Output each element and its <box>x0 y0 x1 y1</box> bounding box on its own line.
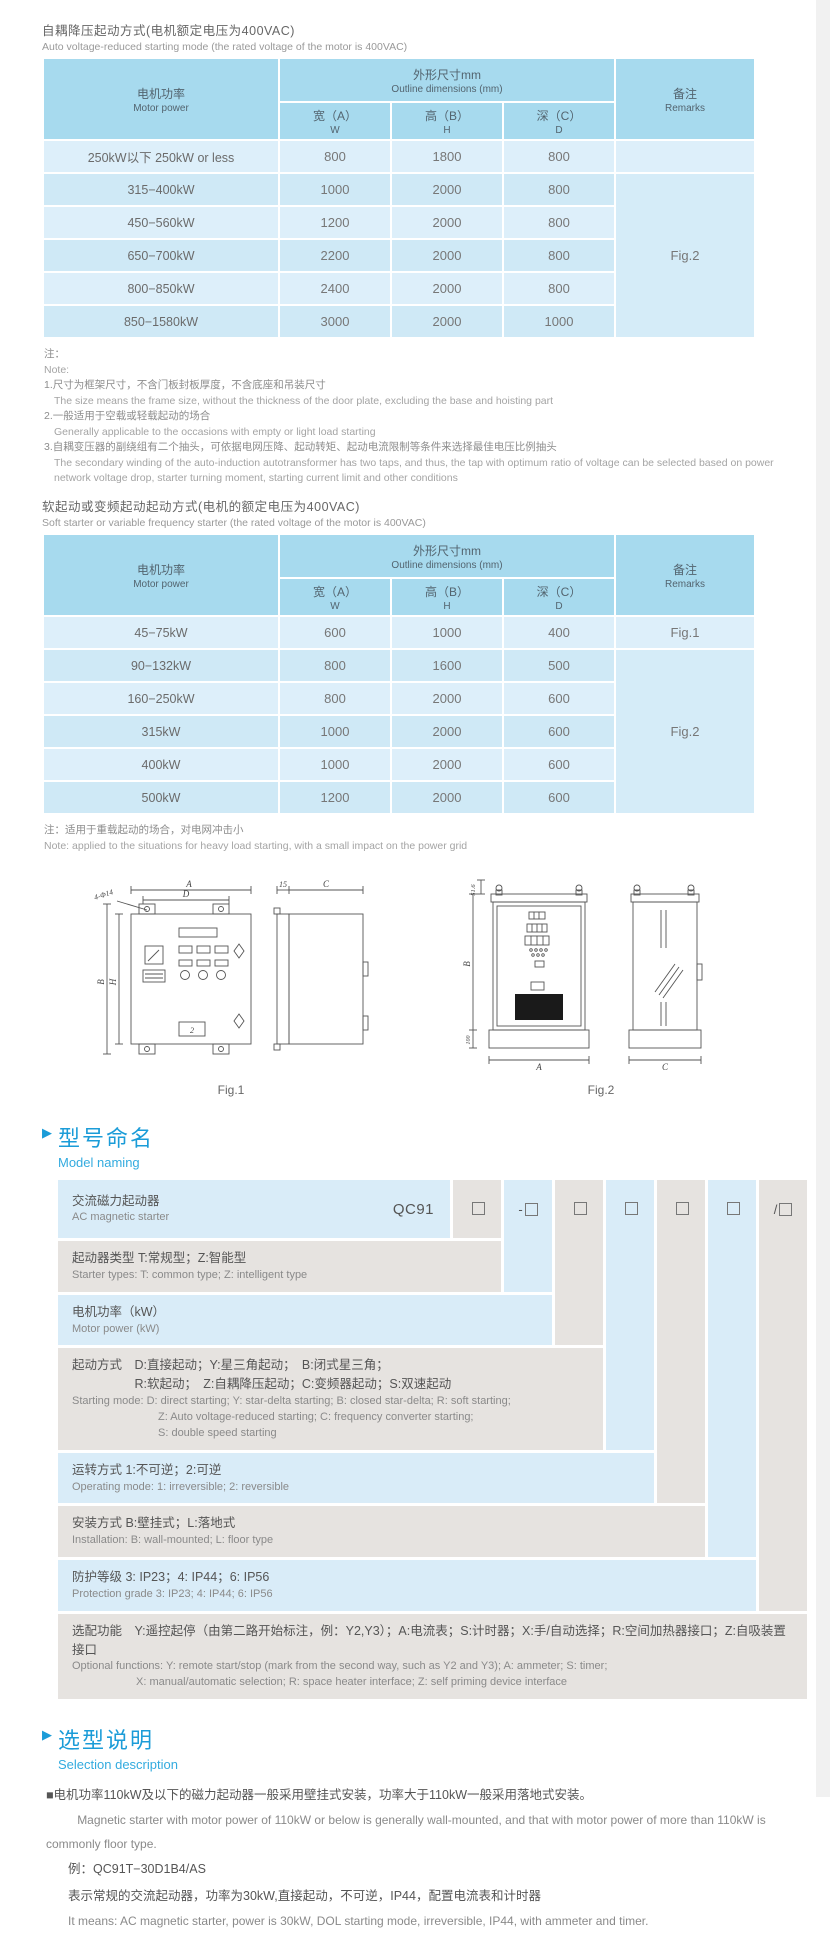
auto-reduced-title: 自耦降压起动方式(电机额定电压为400VAC) Auto voltage-red… <box>42 20 790 53</box>
table-row: 45−75kW 600 1000 400 Fig.1 <box>44 617 754 648</box>
fig1-dim-15: 15 <box>279 880 287 889</box>
selection-example-zh: 表示常规的交流起动器，功率为30kW,直接起动，不可逆，IP44，配置电流表和计… <box>68 1883 794 1909</box>
soft-starter-table: 电机功率 Motor power 外形尺寸mm Outline dimensio… <box>42 533 756 815</box>
col-header-outline: 外形尺寸mm Outline dimensions (mm) <box>280 59 614 101</box>
model-row-starter-type: 起动器类型 T:常规型；Z:智能型 Starter types: T: comm… <box>58 1241 501 1292</box>
note-block-1: 注： Note: 1.尺寸为框架尺寸，不含门板封板厚度，不含底座和吊装尺寸 Th… <box>44 347 790 486</box>
fig1-block: A D 4-Φ14 B H 15 C 2 Fig.1 <box>81 876 381 1097</box>
col-header-height: 高（B） H <box>392 579 502 615</box>
fig1-dim-a: A <box>185 879 192 889</box>
fig1-caption: Fig.1 <box>81 1083 381 1097</box>
fig2-drawing: 51.6 B 100 A C <box>451 876 751 1076</box>
model-naming-table: 交流磁力起动器 AC magnetic starter QC91 - / <box>58 1180 805 1699</box>
dimension-figures: A D 4-Φ14 B H 15 C 2 Fig.1 <box>42 876 790 1097</box>
auto-reduced-title-zh: 自耦降压起动方式(电机额定电压为400VAC) <box>42 20 790 39</box>
selection-example-en: It means: AC magnetic starter, power is … <box>68 1909 794 1933</box>
selection-title-en: Selection description <box>58 1757 178 1772</box>
auto-reduced-title-en: Auto voltage-reduced starting mode (the … <box>42 41 790 53</box>
model-code-box <box>525 1203 538 1216</box>
fig1-dim-h: H <box>108 978 118 986</box>
fig2-dim-a: A <box>535 1062 542 1072</box>
model-row-protection-grade: 防护等级 3: IP23；4: IP44；6: IP56 Protection … <box>58 1560 756 1611</box>
soft-starter-title: 软起动或变频起动起动方式(电机的额定电压为400VAC) Soft starte… <box>42 496 790 529</box>
model-row-product: 交流磁力起动器 AC magnetic starter QC91 <box>58 1180 450 1238</box>
triangle-marker-icon: ▶ <box>42 1727 52 1743</box>
fig2-dim-c: C <box>662 1062 669 1072</box>
model-naming-title-zh: 型号命名 <box>58 1121 154 1153</box>
col-header-depth: 深（C） D <box>504 579 614 615</box>
fig1-dim-d: D <box>182 889 190 899</box>
col-header-depth: 深（C） D <box>504 103 614 139</box>
col-header-remarks: 备注 Remarks <box>616 59 754 139</box>
code-column-7: / <box>759 1180 807 1611</box>
code-column-4 <box>606 1180 654 1450</box>
code-column-1 <box>453 1180 501 1238</box>
selection-section-header: ▶ 选型说明 Selection description <box>42 1723 790 1772</box>
table-row: 250kW以下 250kW or less 800 1800 800 <box>44 141 754 172</box>
model-code-box <box>727 1202 740 1215</box>
col-header-width: 宽（A） W <box>280 579 390 615</box>
merged-remark-fig2: Fig.2 <box>616 174 754 337</box>
soft-starter-title-en: Soft starter or variable frequency start… <box>42 517 790 529</box>
col-header-width: 宽（A） W <box>280 103 390 139</box>
col-header-height: 高（B） H <box>392 103 502 139</box>
col-header-remarks: 备注 Remarks <box>616 535 754 615</box>
fig1-panel-num: 2 <box>190 1026 194 1035</box>
col-header-motor-power: 电机功率 Motor power <box>44 59 278 139</box>
col-header-outline: 外形尺寸mm Outline dimensions (mm) <box>280 535 614 577</box>
selection-title-zh: 选型说明 <box>58 1723 178 1755</box>
table-row: 315−400kW 1000 2000 800 Fig.2 <box>44 174 754 205</box>
remark-fig1: Fig.1 <box>616 617 754 648</box>
model-code-box <box>574 1202 587 1215</box>
merged-remark-fig2: Fig.2 <box>616 650 754 813</box>
fig2-dim-100: 100 <box>466 1036 472 1045</box>
model-code-box <box>779 1203 792 1216</box>
catalog-page: 自耦降压起动方式(电机额定电压为400VAC) Auto voltage-red… <box>0 0 830 1933</box>
fig1-dim-b: B <box>96 979 106 985</box>
fig2-dim-516: 51.6 <box>470 884 477 896</box>
triangle-marker-icon: ▶ <box>42 1125 52 1141</box>
fig2-block: 51.6 B 100 A C Fig.2 <box>451 876 751 1097</box>
base-model-code: QC91 <box>393 1201 436 1218</box>
fig1-drawing: A D 4-Φ14 B H 15 C 2 <box>81 876 381 1076</box>
model-row-optional-functions: 选配功能 Y:遥控起停（由第二路开始标注，例：Y2,Y3）；A:电流表；S:计时… <box>58 1614 807 1699</box>
code-column-2: - <box>504 1180 552 1292</box>
selection-rule-en: Magnetic starter with motor power of 110… <box>46 1808 794 1856</box>
model-row-operating-mode: 运转方式 1:不可逆；2:可逆 Operating mode: 1: irrev… <box>58 1453 654 1504</box>
fig1-dim-c: C <box>323 879 330 889</box>
model-row-starting-mode: 起动方式 D:直接起动；Y:星三角起动； B:闭式星三角；R:软起动； Z:自耦… <box>58 1348 603 1449</box>
fig2-dim-b: B <box>462 961 472 967</box>
model-code-box <box>472 1202 485 1215</box>
model-naming-section-header: ▶ 型号命名 Model naming <box>42 1121 790 1170</box>
code-column-5 <box>657 1180 705 1503</box>
table-row: 90−132kW 800 1600 500 Fig.2 <box>44 650 754 681</box>
selection-rule-zh: ■电机功率110kW及以下的磁力起动器一般采用壁挂式安装，功率大于110kW一般… <box>46 1782 794 1808</box>
model-row-motor-power: 电机功率（kW） Motor power (kW) <box>58 1295 552 1346</box>
fig2-caption: Fig.2 <box>451 1083 751 1097</box>
fig1-holes-label: 4-Φ14 <box>93 887 115 902</box>
soft-starter-title-zh: 软起动或变频起动起动方式(电机的额定电压为400VAC) <box>42 496 790 515</box>
note-block-2: 注：适用于重载起动的场合，对电网冲击小 Note: applied to the… <box>44 823 790 854</box>
auto-reduced-table: 电机功率 Motor power 外形尺寸mm Outline dimensio… <box>42 57 756 339</box>
code-column-3 <box>555 1180 603 1345</box>
model-code-box <box>676 1202 689 1215</box>
model-code-box <box>625 1202 638 1215</box>
model-row-installation: 安装方式 B:壁挂式；L:落地式 Installation: B: wall-m… <box>58 1506 705 1557</box>
selection-example: 例：QC91T−30D1B4/AS <box>68 1856 794 1882</box>
code-column-6 <box>708 1180 756 1557</box>
col-header-motor-power: 电机功率 Motor power <box>44 535 278 615</box>
selection-body: ■电机功率110kW及以下的磁力起动器一般采用壁挂式安装，功率大于110kW一般… <box>46 1782 794 1933</box>
model-naming-title-en: Model naming <box>58 1155 154 1170</box>
